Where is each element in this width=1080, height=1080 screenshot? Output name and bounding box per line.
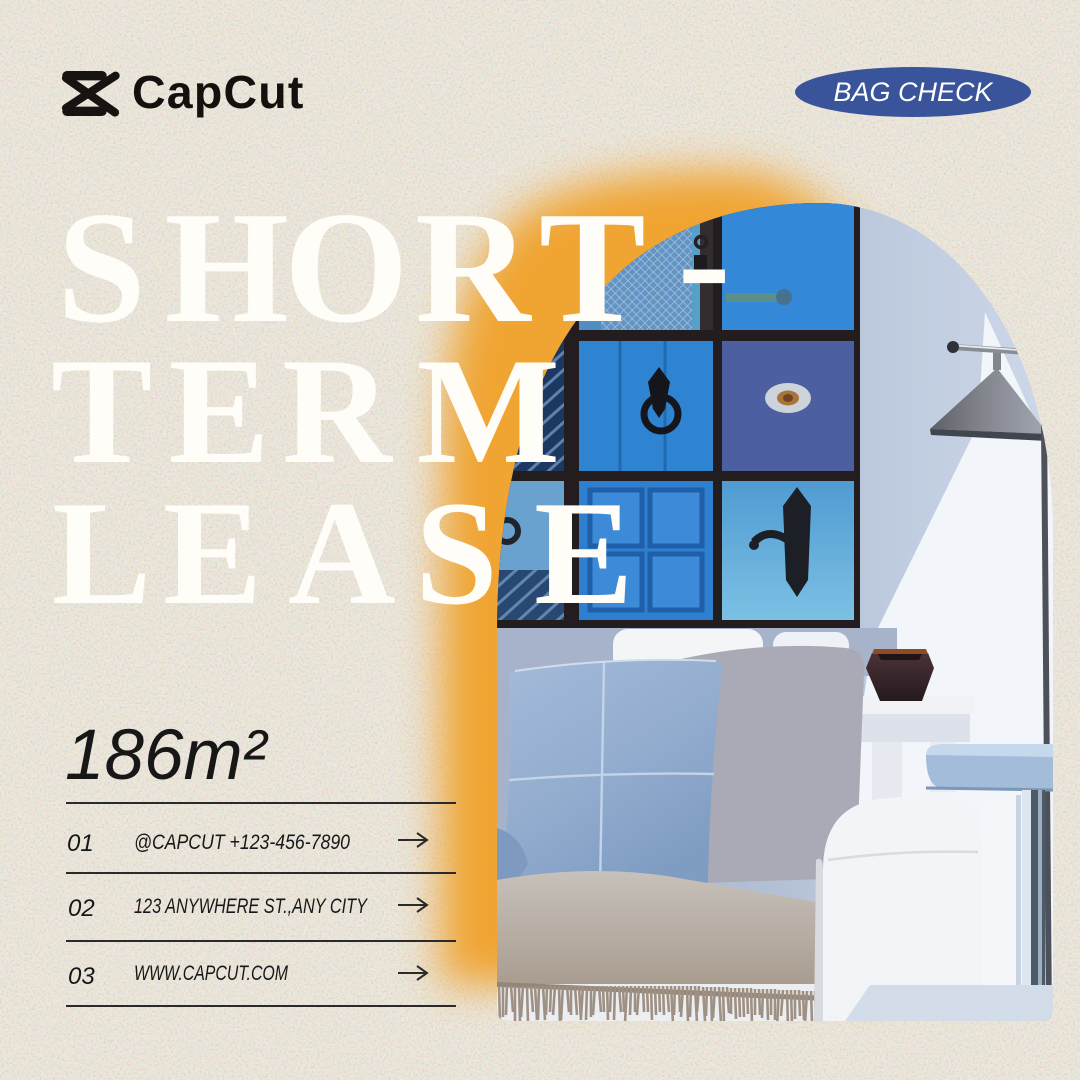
svg-text:01: 01 bbox=[67, 830, 94, 857]
svg-text:123 ANYWHERE ST.,ANY CITY: 123 ANYWHERE ST.,ANY CITY bbox=[134, 895, 369, 918]
svg-text:BAG CHECK: BAG CHECK bbox=[833, 77, 993, 107]
svg-text:CapCut: CapCut bbox=[132, 66, 305, 118]
svg-text:WWW.CAPCUT.COM: WWW.CAPCUT.COM bbox=[134, 962, 288, 985]
svg-text:@CAPCUT +123-456-7890: @CAPCUT +123-456-7890 bbox=[134, 831, 350, 854]
svg-text:186m²: 186m² bbox=[65, 716, 269, 795]
svg-text:02: 02 bbox=[68, 895, 95, 922]
svg-text:LEASE: LEASE bbox=[52, 471, 633, 636]
svg-text:03: 03 bbox=[68, 963, 95, 990]
svg-text:TERM: TERM bbox=[51, 327, 560, 495]
